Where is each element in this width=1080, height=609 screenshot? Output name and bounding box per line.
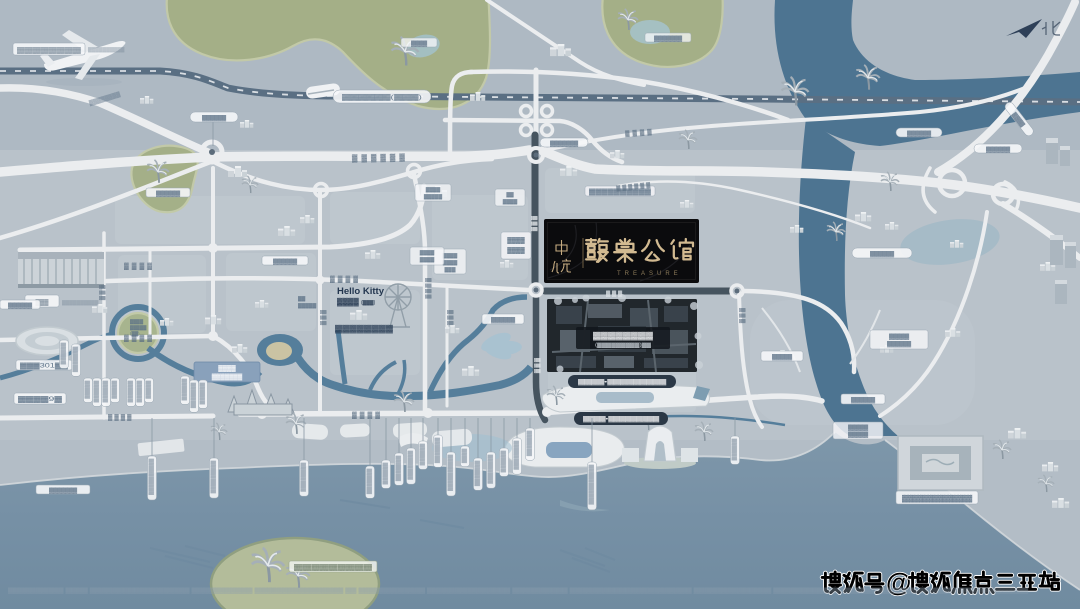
svg-text:▓▓▓▓▓▓▓▓▓▓ ▓▓▓▓ ▓▓▓▓▓▓▓▓▓▓▓▓▓▓: ▓▓▓▓▓▓▓▓▓▓ ▓▓▓▓ ▓▓▓▓▓▓▓▓▓▓▓▓▓▓▓▓▓▓ ▓▓▓▓▓… xyxy=(8,587,1029,594)
